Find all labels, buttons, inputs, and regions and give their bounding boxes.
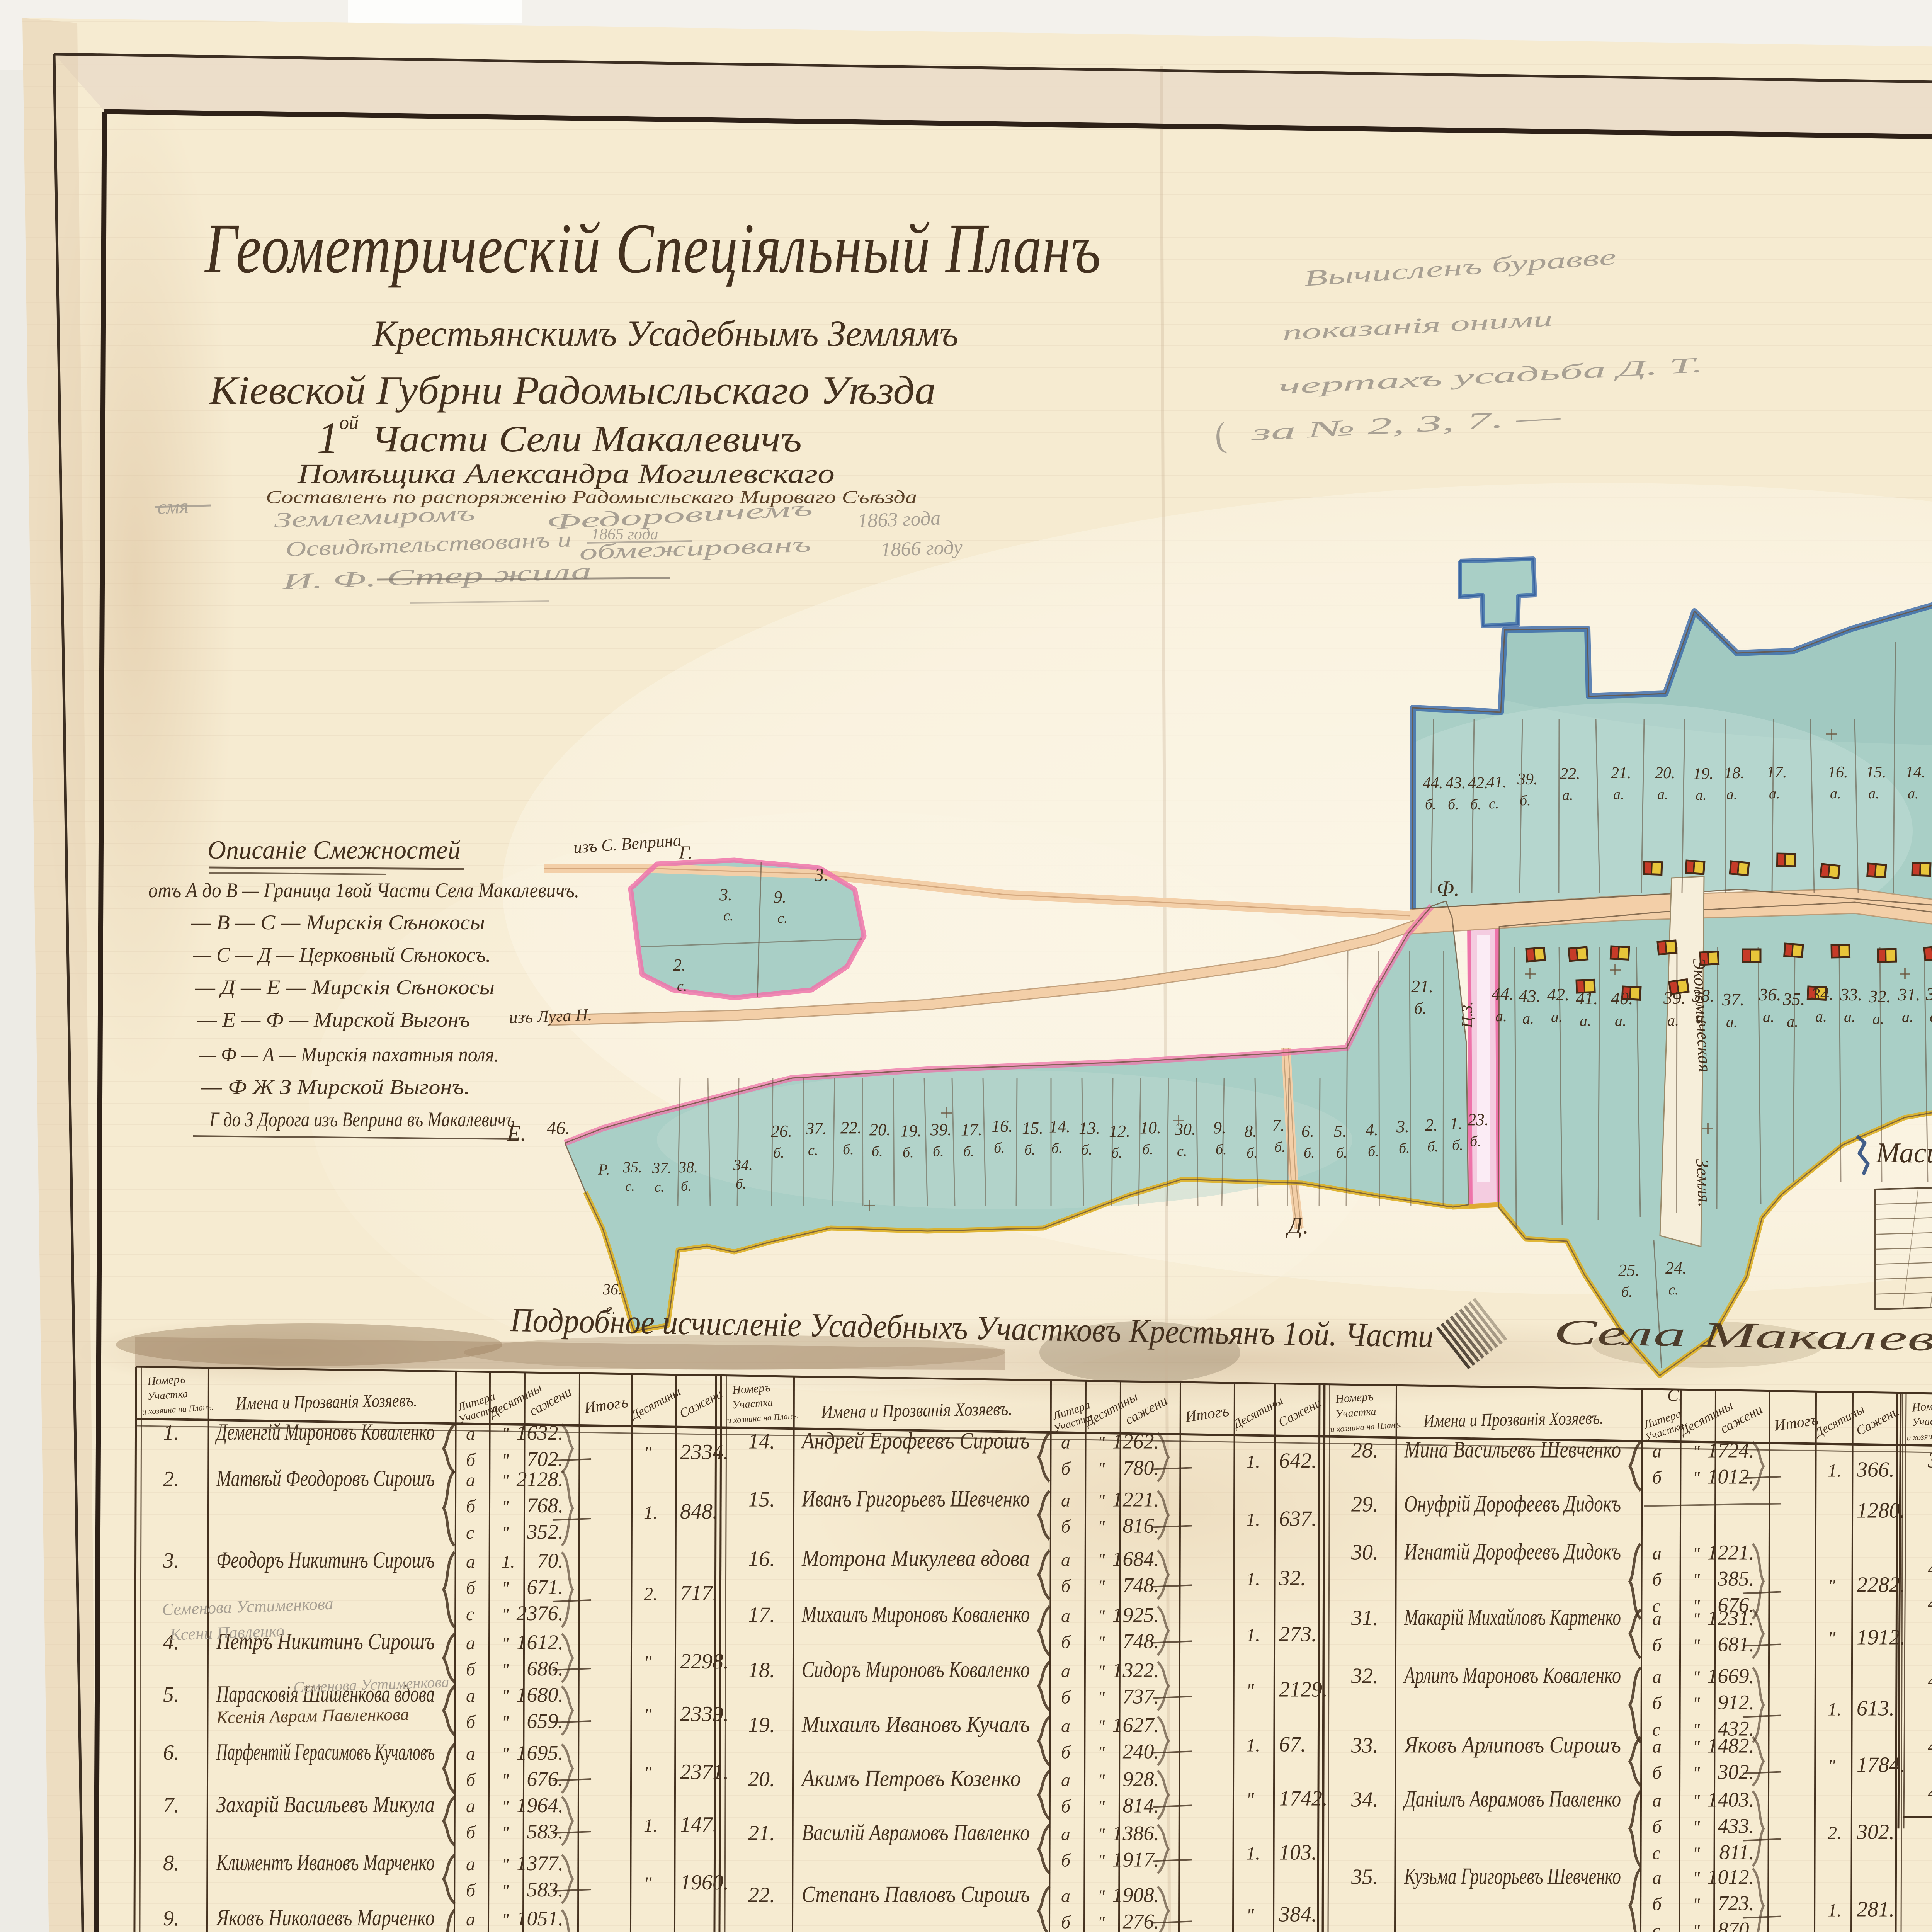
svg-text:18.: 18. — [1724, 764, 1745, 782]
svg-text:а.: а. — [1830, 786, 1841, 802]
svg-text:2.: 2. — [644, 1584, 658, 1604]
svg-text:36.: 36. — [602, 1281, 622, 1298]
svg-text:748.: 748. — [1123, 1573, 1160, 1597]
svg-text:б.: б. — [1470, 1133, 1481, 1150]
svg-text:а.: а. — [1657, 786, 1668, 803]
svg-text:1917.: 1917. — [1112, 1848, 1160, 1871]
svg-text:c.: c. — [655, 1179, 664, 1195]
svg-text:14.: 14. — [748, 1429, 775, 1453]
svg-text:702.: 702. — [527, 1447, 564, 1471]
svg-text:42.: 42. — [1928, 1669, 1932, 1693]
svg-text:": " — [1828, 1576, 1836, 1596]
svg-text:а.: а. — [1763, 1008, 1774, 1026]
svg-text:1784.: 1784. — [1857, 1753, 1905, 1777]
svg-text:а.: а. — [1726, 786, 1738, 803]
svg-text:а: а — [1061, 1605, 1070, 1626]
svg-text:": " — [1692, 1667, 1700, 1687]
svg-text:2376.: 2376. — [517, 1602, 564, 1625]
svg-text:": " — [1692, 1817, 1700, 1837]
svg-text:б.: б. — [1399, 1140, 1410, 1156]
svg-text:39.: 39. — [930, 1120, 952, 1139]
svg-text:c.: c. — [677, 978, 687, 994]
svg-text:352.: 352. — [527, 1520, 564, 1543]
svg-text:б: б — [1061, 1576, 1071, 1596]
svg-text:1964.: 1964. — [517, 1794, 564, 1817]
svg-text:928.: 928. — [1123, 1767, 1160, 1791]
svg-text:18.: 18. — [748, 1658, 775, 1682]
svg-text:а.: а. — [1872, 1010, 1884, 1027]
svg-text:c.: c. — [1177, 1143, 1187, 1159]
svg-text:1012.: 1012. — [1708, 1465, 1755, 1488]
svg-text:30.: 30. — [1174, 1120, 1196, 1139]
svg-text:302.: 302. — [1856, 1820, 1895, 1844]
svg-text:32.: 32. — [1351, 1664, 1378, 1688]
svg-text:35.: 35. — [1351, 1865, 1378, 1889]
svg-text:1322.: 1322. — [1112, 1658, 1160, 1682]
svg-text:а: а — [1061, 1770, 1070, 1790]
svg-text:583.: 583. — [527, 1820, 564, 1843]
svg-text:768.: 768. — [527, 1494, 564, 1517]
svg-text:35.: 35. — [1782, 989, 1805, 1009]
svg-text:1482.: 1482. — [1708, 1734, 1755, 1757]
svg-text:659.: 659. — [527, 1709, 564, 1733]
svg-text:912.: 912. — [1718, 1691, 1755, 1714]
svg-text:33.: 33. — [1840, 985, 1862, 1004]
svg-text:б: б — [1061, 1687, 1071, 1708]
svg-text:а.: а. — [1562, 787, 1573, 803]
svg-text:б.: б. — [681, 1179, 691, 1194]
svg-text:с: с — [466, 1522, 474, 1543]
svg-text:1.: 1. — [1828, 1461, 1842, 1481]
svg-text:б.: б. — [994, 1140, 1005, 1156]
svg-text:": " — [1097, 1459, 1105, 1478]
svg-text:32.: 32. — [1868, 986, 1891, 1006]
svg-text:c.: c. — [808, 1142, 818, 1158]
svg-text:б: б — [1061, 1850, 1071, 1871]
svg-text:25.: 25. — [1618, 1261, 1639, 1280]
svg-text:44.: 44. — [1423, 774, 1443, 792]
svg-text:37.: 37. — [805, 1119, 827, 1138]
svg-text:1280.: 1280. — [1857, 1499, 1905, 1523]
svg-text:": " — [502, 1450, 509, 1470]
svg-text:б.: б. — [933, 1143, 944, 1160]
svg-text:8.: 8. — [1244, 1122, 1257, 1141]
svg-text:а: а — [1652, 1609, 1662, 1629]
svg-text:20.: 20. — [1655, 764, 1675, 782]
svg-text:30.: 30. — [1925, 984, 1932, 1004]
svg-text:38.: 38. — [678, 1158, 698, 1176]
svg-text:5.: 5. — [1334, 1122, 1347, 1141]
svg-text:20.: 20. — [869, 1120, 891, 1139]
svg-text:14.: 14. — [1049, 1117, 1070, 1136]
svg-text:1695.: 1695. — [517, 1741, 564, 1764]
svg-text:Номеръ: Номеръ — [146, 1372, 186, 1388]
svg-text:а.: а. — [1930, 1008, 1932, 1025]
svg-text:а.: а. — [1522, 1010, 1534, 1027]
svg-text:737.: 737. — [1123, 1685, 1160, 1708]
svg-text:": " — [502, 1712, 509, 1732]
svg-text:а.: а. — [1815, 1008, 1827, 1025]
svg-text:": " — [1692, 1791, 1700, 1811]
svg-text:б: б — [1652, 1693, 1662, 1714]
svg-text:": " — [502, 1633, 509, 1653]
svg-text:б.: б. — [1304, 1145, 1315, 1161]
svg-text:": " — [1692, 1468, 1700, 1488]
svg-text:1.: 1. — [1246, 1569, 1260, 1589]
svg-text:а.: а. — [1696, 1009, 1708, 1027]
svg-text:31.: 31. — [1898, 985, 1920, 1004]
svg-text:а: а — [466, 1470, 475, 1490]
svg-text:Кіевской Губрни Радомысльскаго: Кіевской Губрни Радомысльскаго Уѣзда — [209, 367, 936, 413]
svg-text:41.: 41. — [1576, 988, 1598, 1008]
svg-text:б.: б. — [1425, 796, 1436, 813]
svg-text:— Ф Ж З Мирской Выгонъ.: — Ф Ж З Мирской Выгонъ. — [201, 1075, 470, 1099]
svg-text:1669.: 1669. — [1708, 1665, 1755, 1688]
svg-text:2371.: 2371. — [680, 1760, 729, 1784]
svg-text:613.: 613. — [1857, 1697, 1895, 1721]
svg-text:19.: 19. — [900, 1121, 922, 1140]
svg-text:22.: 22. — [1560, 765, 1580, 783]
svg-text:2.: 2. — [163, 1467, 179, 1491]
svg-text:366.: 366. — [1856, 1458, 1895, 1482]
svg-text:а.: а. — [1769, 786, 1780, 802]
svg-text:Крестьянскимъ Усадебнымъ Земля: Крестьянскимъ Усадебнымъ Землямъ — [372, 313, 958, 354]
svg-text:21.: 21. — [1411, 976, 1434, 996]
svg-text:1.: 1. — [1828, 1900, 1842, 1921]
svg-text:28.: 28. — [1351, 1439, 1378, 1463]
svg-text:а.: а. — [1908, 786, 1919, 802]
svg-text:Помѣщика Александра Могилевс: Помѣщика Александра Могилевскаго — [297, 458, 835, 489]
svg-text:1.: 1. — [1246, 1735, 1260, 1755]
svg-text:2334.: 2334. — [680, 1440, 729, 1464]
svg-text:а.: а. — [1495, 1007, 1507, 1025]
svg-text:9.: 9. — [774, 888, 786, 906]
svg-text:33.: 33. — [1351, 1734, 1378, 1758]
svg-text:Ксени Павленко: Ксени Павленко — [169, 1621, 285, 1644]
svg-text:— Е — Ф — Мирской Выгонъ: — Е — Ф — Мирской Выгонъ — [197, 1008, 470, 1031]
svg-text:Степанъ Павловъ Сирошъ: Степанъ Павловъ Сирошъ — [802, 1881, 1030, 1907]
svg-text:": " — [1097, 1796, 1105, 1816]
svg-text:43.: 43. — [1928, 1735, 1932, 1759]
svg-text:1627.: 1627. — [1112, 1713, 1160, 1736]
svg-text:б: б — [1061, 1516, 1071, 1537]
svg-text:б.: б. — [1427, 1139, 1439, 1155]
svg-text:б: б — [1061, 1912, 1071, 1932]
svg-text:12.: 12. — [1109, 1122, 1130, 1141]
svg-text:637.: 637. — [1279, 1507, 1317, 1531]
svg-text:": " — [1097, 1716, 1105, 1736]
svg-text:": " — [502, 1744, 509, 1764]
svg-text:": " — [1097, 1606, 1105, 1626]
svg-text:б: б — [1652, 1468, 1662, 1488]
svg-text:а: а — [1061, 1661, 1070, 1681]
svg-text:а.: а. — [1902, 1008, 1913, 1026]
svg-text:43.: 43. — [1519, 986, 1541, 1006]
svg-text:а.: а. — [1580, 1012, 1591, 1029]
svg-text:Игнатій Дорофеевъ Дидокъ: Игнатій Дорофеевъ Дидокъ — [1404, 1539, 1621, 1565]
svg-text:c.: c. — [1668, 1282, 1679, 1298]
svg-text:2128.: 2128. — [517, 1468, 564, 1491]
svg-text:14.: 14. — [1905, 764, 1926, 781]
svg-text:1051.: 1051. — [517, 1907, 564, 1930]
svg-text:": " — [1828, 1628, 1836, 1649]
svg-text:16.: 16. — [748, 1547, 775, 1571]
svg-text:538.: 538. — [1123, 1930, 1160, 1932]
svg-text:Описаніе Смежностей: Описаніе Смежностей — [207, 835, 461, 864]
svg-text:2.: 2. — [673, 956, 686, 975]
svg-text:": " — [502, 1604, 509, 1624]
svg-text:": " — [502, 1523, 509, 1543]
svg-text:а.: а. — [1868, 786, 1879, 802]
svg-text:": " — [1692, 1737, 1700, 1757]
svg-text:29.: 29. — [1351, 1493, 1378, 1517]
svg-text:Парфентій Герасимовъ Кучаловъ: Парфентій Герасимовъ Кучаловъ — [216, 1739, 435, 1765]
svg-text:19.: 19. — [748, 1713, 775, 1737]
svg-text:": " — [502, 1424, 509, 1444]
svg-text:": " — [502, 1470, 509, 1490]
svg-text:б.: б. — [1051, 1140, 1063, 1156]
svg-text:676.: 676. — [527, 1767, 564, 1791]
svg-text:1221.: 1221. — [1708, 1541, 1755, 1564]
svg-text:276.: 276. — [1123, 1910, 1160, 1932]
svg-text:1.: 1. — [502, 1552, 515, 1571]
svg-text:15.: 15. — [1022, 1119, 1043, 1138]
svg-text:2.: 2. — [1828, 1823, 1842, 1844]
svg-text:Имена и Прозванія Хозяевъ.: Имена и Прозванія Хозяевъ. — [820, 1399, 1012, 1423]
svg-text:40.: 40. — [1611, 988, 1633, 1008]
svg-text:21.: 21. — [748, 1821, 775, 1845]
svg-text:Кузьма Григорьевъ Шевченко: Кузьма Григорьевъ Шевченко — [1404, 1864, 1621, 1889]
svg-text:Акимъ Петровъ Козенко: Акимъ Петровъ Козенко — [800, 1765, 1021, 1791]
svg-text:39.: 39. — [1927, 1449, 1932, 1473]
svg-text:б: б — [1061, 1742, 1071, 1762]
svg-text:67.: 67. — [1279, 1732, 1306, 1756]
svg-text:1925.: 1925. — [1112, 1603, 1160, 1626]
svg-text:39.: 39. — [1663, 988, 1686, 1008]
svg-text:а.: а. — [1787, 1013, 1798, 1030]
svg-text:Климентъ Ивановъ Марченко: Климентъ Ивановъ Марченко — [216, 1850, 435, 1875]
svg-text:Яковъ Марковъ Павленко: Яковъ Марковъ Павленко — [801, 1928, 1030, 1932]
svg-text:б: б — [1652, 1570, 1662, 1590]
svg-text:15.: 15. — [748, 1487, 775, 1511]
svg-text:б: б — [1652, 1763, 1662, 1783]
svg-text:44.: 44. — [1928, 1781, 1932, 1805]
svg-text:б: б — [466, 1659, 476, 1680]
svg-text:811.: 811. — [1719, 1841, 1755, 1864]
svg-text:б.: б. — [1621, 1284, 1633, 1300]
svg-text:": " — [1246, 1905, 1254, 1925]
svg-text:6.: 6. — [163, 1741, 179, 1765]
svg-text:384.: 384. — [1279, 1902, 1317, 1926]
svg-text:385.: 385. — [1718, 1567, 1755, 1590]
svg-text:3.: 3. — [163, 1549, 179, 1573]
svg-text:147.: 147. — [680, 1813, 718, 1837]
svg-text:17.: 17. — [748, 1603, 775, 1627]
svg-text:780.: 780. — [1123, 1456, 1160, 1479]
svg-text:с: с — [1652, 1843, 1660, 1864]
svg-text:Геометрическій Спеціяльный Пла: Геометрическій Спеціяльный Планъ — [204, 209, 1101, 288]
svg-text:б.: б. — [773, 1145, 784, 1161]
svg-text:": " — [1246, 1680, 1254, 1701]
svg-text:б.: б. — [963, 1143, 975, 1160]
svg-text:а.: а. — [1613, 786, 1624, 803]
svg-text:8.: 8. — [163, 1851, 179, 1875]
svg-text:24.: 24. — [1665, 1259, 1687, 1277]
svg-text:Г до З Дорога изъ Веприна въ: Г до З Дорога изъ Веприна въ Макалевичъ — [209, 1108, 515, 1131]
svg-text:1866 году: 1866 году — [880, 536, 963, 561]
svg-text:Масштабъ: Масштабъ — [1876, 1137, 1932, 1169]
svg-text:": " — [644, 1652, 652, 1673]
svg-text:23.: 23. — [748, 1929, 775, 1932]
svg-text:34.: 34. — [1351, 1788, 1378, 1812]
svg-text:1.: 1. — [1246, 1509, 1260, 1530]
svg-text:2129.: 2129. — [1279, 1677, 1328, 1701]
svg-text:Деменгій Мироновъ Коваленко: Деменгій Мироновъ Коваленко — [215, 1419, 435, 1445]
svg-text:": " — [1692, 1570, 1700, 1590]
svg-text:б.: б. — [1414, 1000, 1427, 1018]
svg-text:б.: б. — [1247, 1145, 1258, 1161]
svg-text:а.: а. — [1615, 1012, 1626, 1029]
svg-text:Даніилъ Аврамовъ Павленко: Даніилъ Аврамовъ Павленко — [1403, 1786, 1621, 1812]
svg-text:б: б — [466, 1770, 476, 1790]
svg-text:": " — [502, 1770, 509, 1790]
svg-text:": " — [1097, 1742, 1105, 1762]
svg-text:1863 года: 1863 года — [857, 507, 941, 532]
svg-text:б.: б. — [843, 1141, 854, 1158]
svg-text:": " — [502, 1497, 509, 1516]
svg-text:Д.: Д. — [1286, 1213, 1309, 1239]
svg-text:c.: c. — [723, 908, 733, 924]
svg-text:а: а — [1652, 1868, 1662, 1888]
svg-text:Иванъ Григорьевъ Шевченко: Иванъ Григорьевъ Шевченко — [801, 1486, 1030, 1511]
svg-text:б: б — [466, 1880, 476, 1901]
svg-text:": " — [1692, 1844, 1700, 1863]
svg-text:": " — [502, 1660, 509, 1679]
svg-text:2339.: 2339. — [680, 1702, 729, 1726]
svg-text:1742.: 1742. — [1279, 1786, 1328, 1810]
svg-text:1680.: 1680. — [517, 1683, 564, 1706]
svg-text:1.: 1. — [1450, 1114, 1463, 1133]
svg-text:Номеръ: Номеръ — [1911, 1399, 1932, 1414]
svg-text:": " — [502, 1854, 509, 1874]
svg-text:а.: а. — [1667, 1012, 1679, 1029]
svg-text:41.: 41. — [1486, 774, 1507, 791]
svg-text:а: а — [466, 1423, 475, 1444]
svg-text:17.: 17. — [961, 1120, 982, 1139]
svg-text:Части Сели Макалевичъ: Части Сели Макалевичъ — [371, 418, 802, 459]
svg-text:Мина Васильевъ Шевченко: Мина Васильевъ Шевченко — [1404, 1437, 1621, 1463]
svg-text:16.: 16. — [1828, 764, 1848, 781]
svg-text:с: с — [1652, 1920, 1660, 1932]
svg-text:": " — [1097, 1770, 1105, 1790]
svg-text:б: б — [466, 1450, 476, 1470]
svg-text:": " — [502, 1796, 509, 1816]
svg-text:": " — [1692, 1921, 1700, 1932]
svg-text:40.: 40. — [1928, 1557, 1932, 1581]
svg-text:10.: 10. — [1140, 1118, 1161, 1137]
svg-text:б.: б. — [903, 1145, 914, 1161]
svg-text:а: а — [466, 1909, 475, 1930]
svg-text:": " — [1692, 1442, 1700, 1461]
svg-text:3.: 3. — [719, 885, 732, 904]
svg-text:42.: 42. — [1547, 985, 1570, 1004]
svg-text:1231.: 1231. — [1708, 1607, 1755, 1630]
svg-text:723.: 723. — [1718, 1892, 1755, 1915]
svg-text:З.: З. — [815, 865, 828, 885]
svg-text:б.: б. — [1024, 1142, 1036, 1158]
svg-text:б.: б. — [1452, 1137, 1463, 1153]
svg-text:б: б — [466, 1496, 476, 1517]
svg-text:": " — [1097, 1850, 1105, 1870]
svg-text:4.: 4. — [1366, 1120, 1378, 1139]
svg-text:отъ А до В — Граница 1вой Част: отъ А до В — Граница 1вой Части Села Мак… — [148, 879, 579, 902]
svg-text:а: а — [1061, 1490, 1070, 1510]
svg-text:583.: 583. — [527, 1878, 564, 1901]
svg-text:изъ Луга Н.: изъ Луга Н. — [509, 1005, 592, 1027]
svg-text:20.: 20. — [748, 1767, 775, 1791]
svg-text:15.: 15. — [1866, 764, 1886, 781]
svg-text:717.: 717. — [680, 1581, 718, 1605]
svg-text:а: а — [1652, 1791, 1662, 1811]
svg-text:а: а — [1652, 1736, 1662, 1757]
svg-text:Феодоръ Никитинъ Сирошъ: Феодоръ Никитинъ Сирошъ — [216, 1547, 435, 1573]
svg-text:43.: 43. — [1446, 774, 1466, 792]
svg-text:": " — [1097, 1432, 1105, 1452]
svg-text:1612.: 1612. — [517, 1631, 564, 1654]
svg-text:1908.: 1908. — [1112, 1883, 1160, 1906]
svg-text:— С — Д — Церковный Сѣнокосъ.: — С — Д — Церковный Сѣнокосъ. — [193, 943, 491, 966]
svg-text:16.: 16. — [992, 1117, 1013, 1136]
svg-text:34.: 34. — [733, 1156, 753, 1173]
svg-text:б: б — [466, 1712, 476, 1732]
svg-text:а.: а. — [1551, 1008, 1563, 1026]
svg-text:а: а — [1061, 1432, 1070, 1452]
svg-text:2298.: 2298. — [680, 1650, 729, 1673]
svg-text:1: 1 — [317, 413, 339, 463]
svg-text:б.: б. — [1448, 796, 1459, 813]
svg-text:Арлипъ Мароновъ Коваленко: Арлипъ Мароновъ Коваленко — [1403, 1663, 1621, 1688]
svg-text:3.: 3. — [1396, 1117, 1409, 1136]
svg-text:а: а — [466, 1551, 475, 1572]
svg-text:": " — [1097, 1632, 1105, 1652]
svg-text:Ксенія Аврам Павленкова: Ксенія Аврам Павленкова — [216, 1704, 409, 1727]
svg-text:": " — [644, 1443, 652, 1463]
svg-text:848.: 848. — [680, 1500, 718, 1524]
svg-text:1724.: 1724. — [1708, 1439, 1755, 1462]
svg-text:а: а — [1061, 1886, 1070, 1906]
svg-text:6.: 6. — [1301, 1122, 1314, 1141]
svg-text:б.: б. — [1368, 1143, 1379, 1160]
svg-text:Макарій Михайловъ Картенко: Макарій Михайловъ Картенко — [1404, 1605, 1621, 1630]
svg-text:а.: а. — [1726, 1013, 1738, 1031]
svg-text:б.: б. — [872, 1143, 883, 1160]
svg-text:б.: б. — [1336, 1145, 1347, 1161]
svg-text:1.: 1. — [1246, 1843, 1260, 1864]
svg-text:34.: 34. — [1811, 984, 1834, 1004]
svg-text:Имена и Прозванія Хозяевъ.: Имена и Прозванія Хозяевъ. — [235, 1390, 417, 1414]
svg-text:б.: б. — [736, 1176, 746, 1192]
svg-text:б.: б. — [1111, 1145, 1122, 1161]
svg-text:б.: б. — [1470, 796, 1481, 813]
svg-text:9.: 9. — [163, 1906, 179, 1930]
svg-text:а.: а. — [1696, 787, 1707, 803]
svg-text:а: а — [466, 1743, 475, 1764]
svg-text:": " — [1692, 1636, 1700, 1655]
svg-text:32.: 32. — [1279, 1566, 1306, 1590]
svg-text:— Ф — А — Мирскія пахатныя пол: — Ф — А — Мирскія пахатныя поля. — [199, 1043, 499, 1066]
svg-text:642.: 642. — [1279, 1449, 1317, 1473]
svg-text:1.: 1. — [1246, 1451, 1260, 1472]
